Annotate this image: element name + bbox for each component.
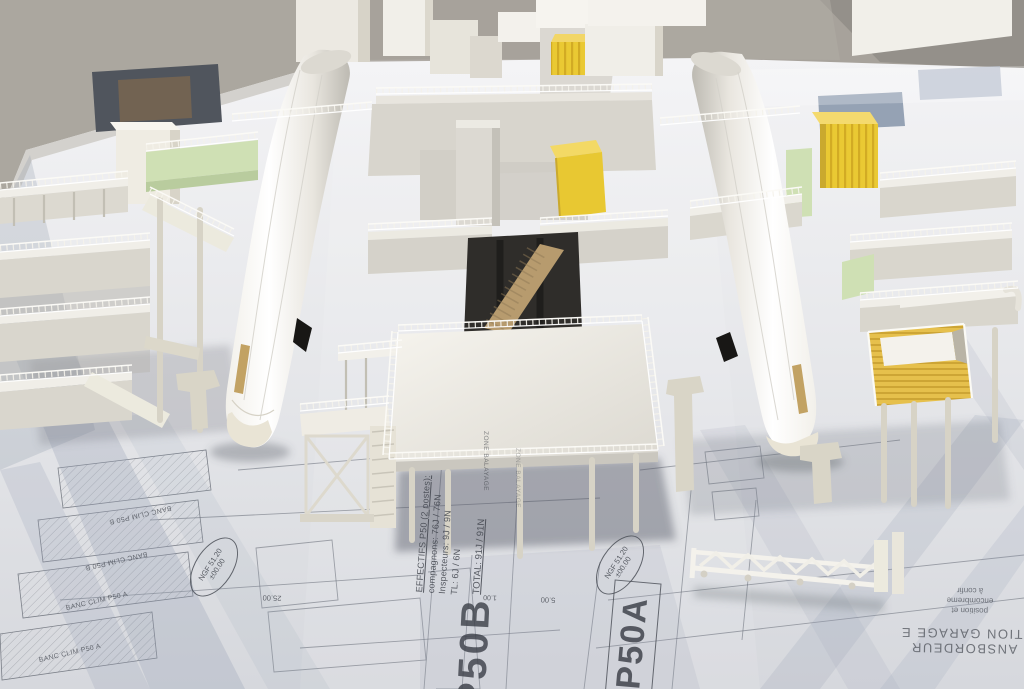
garage-title-line: ITION GARAGE E: [900, 625, 1024, 642]
photo-scale-model-scene: EFFECTIFS P50 (2 postes): compagnons: 76…: [0, 0, 1024, 689]
yellow-container-right: [812, 112, 878, 188]
garage-note-line: encombreme: [947, 595, 994, 606]
station-a-label: P50A: [604, 579, 662, 689]
open-top-bin: [868, 324, 972, 406]
green-deck-panel: [842, 254, 874, 300]
gray-tower: [456, 128, 496, 226]
zone-label: ZONE BALAYAGE: [482, 431, 489, 491]
station-b-label: P50B: [449, 596, 500, 689]
garage-title: ANSBORDEUR ITION GARAGE E: [900, 625, 1024, 657]
garage-title-line: ANSBORDEUR: [900, 640, 1024, 657]
stair-column: [370, 426, 396, 528]
dimension-label: 5.00: [541, 595, 556, 605]
garage-note-line: position et: [946, 605, 993, 616]
garage-note: position et encombreme à confir: [946, 585, 993, 616]
dimension-label: 1.00: [483, 593, 497, 600]
scene-art: [0, 0, 1024, 689]
zone-label: ZONE BALAYAGE: [514, 448, 521, 508]
staffing-note: EFFECTIFS P50 (2 postes): compagnons: 76…: [414, 475, 468, 595]
support-post: [892, 532, 904, 594]
dimension-label: 25.00: [262, 593, 281, 603]
yellow-container-center: [550, 140, 606, 218]
yellow-container-top: [551, 34, 589, 75]
